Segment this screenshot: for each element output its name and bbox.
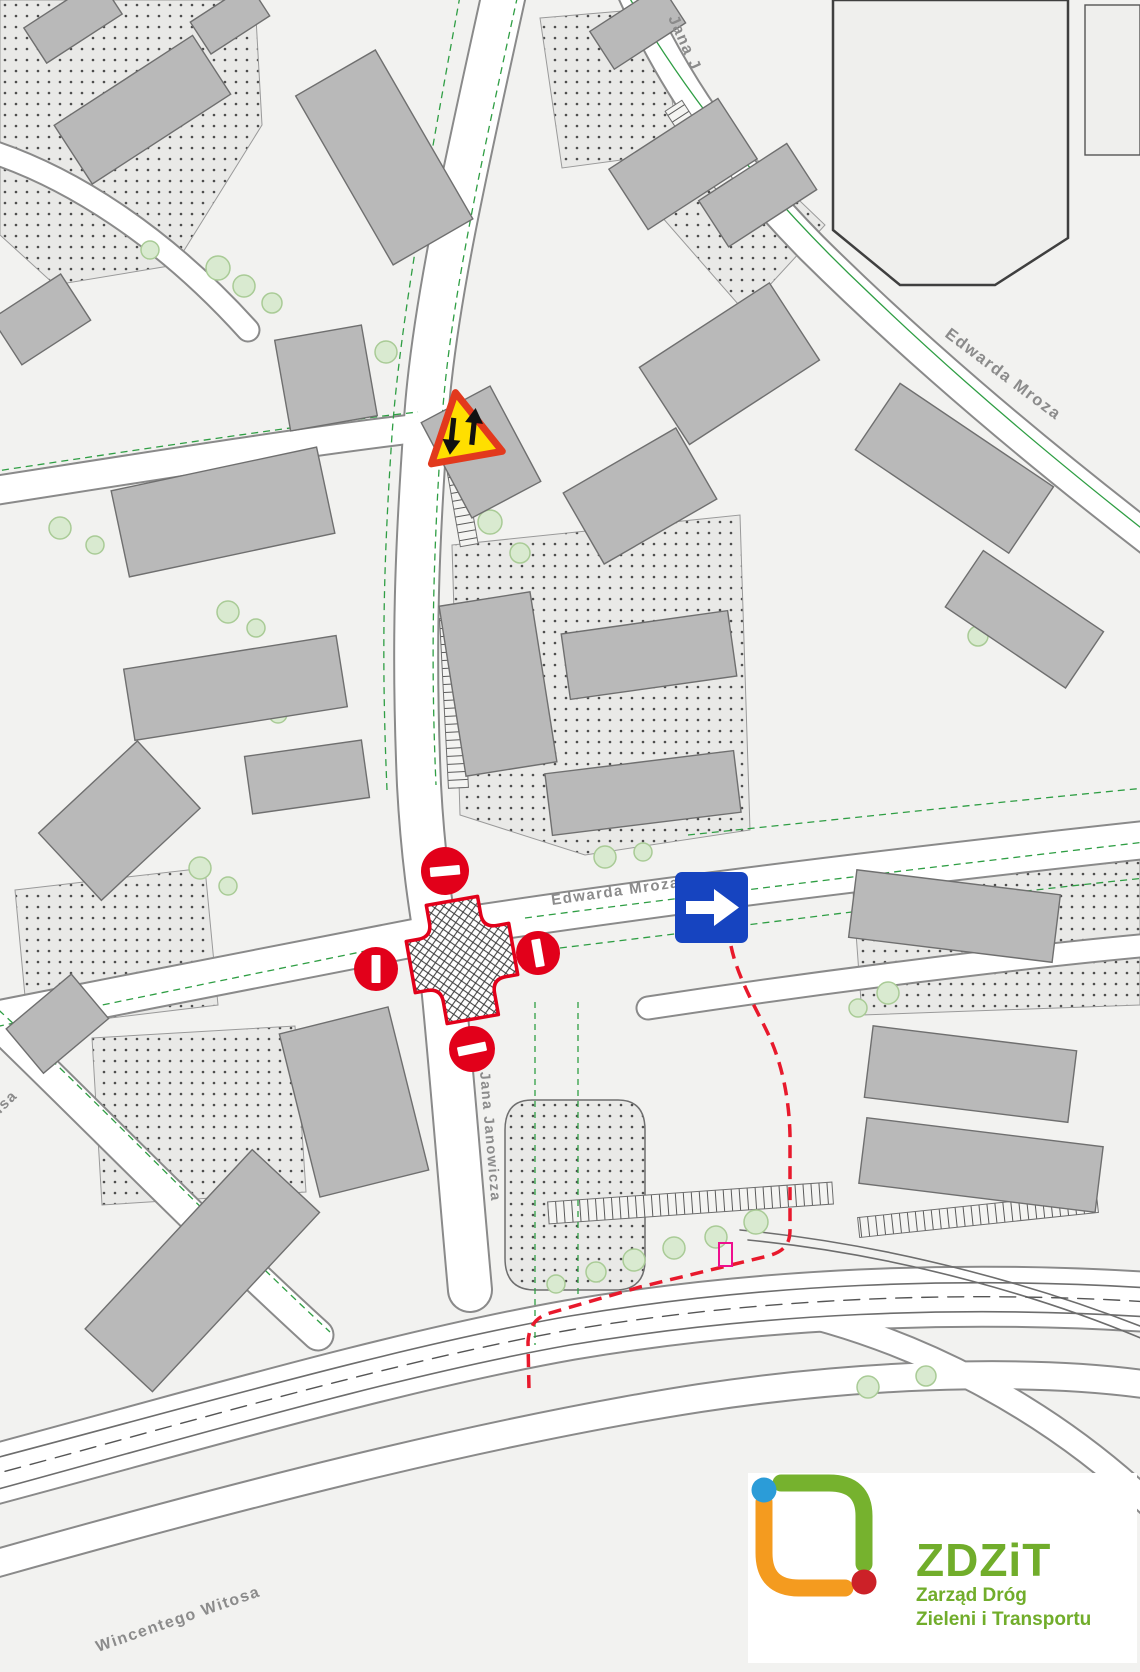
logo-red-dot [852,1570,877,1595]
logo-line1: Zarząd Dróg [916,1585,1091,1607]
one-way-right-arrow-icon [675,872,748,943]
map-canvas: Jana J Edwarda Mroza Edwarda Mroza Jana … [0,0,1140,1672]
logo-line2: Zieleni i Transportu [916,1609,1091,1631]
zdzit-logo-box: ZDZiT Zarząd Dróg Zieleni i Transportu [748,1473,1137,1663]
logo-abbr: ZDZiT [916,1537,1091,1583]
logo-blue-dot [752,1478,777,1503]
zdzit-logo-mark-icon [748,1473,878,1613]
zdzit-logo-text: ZDZiT Zarząd Dróg Zieleni i Transportu [916,1537,1091,1631]
detour-map-plan: Jana J Edwarda Mroza Edwarda Mroza Jana … [0,0,1140,1672]
street-label-wincentego-witosa: Wincentego Witosa [94,1583,263,1655]
street-label-partial-west: lisa [0,1087,21,1121]
no-entry-icon-west [354,947,398,991]
